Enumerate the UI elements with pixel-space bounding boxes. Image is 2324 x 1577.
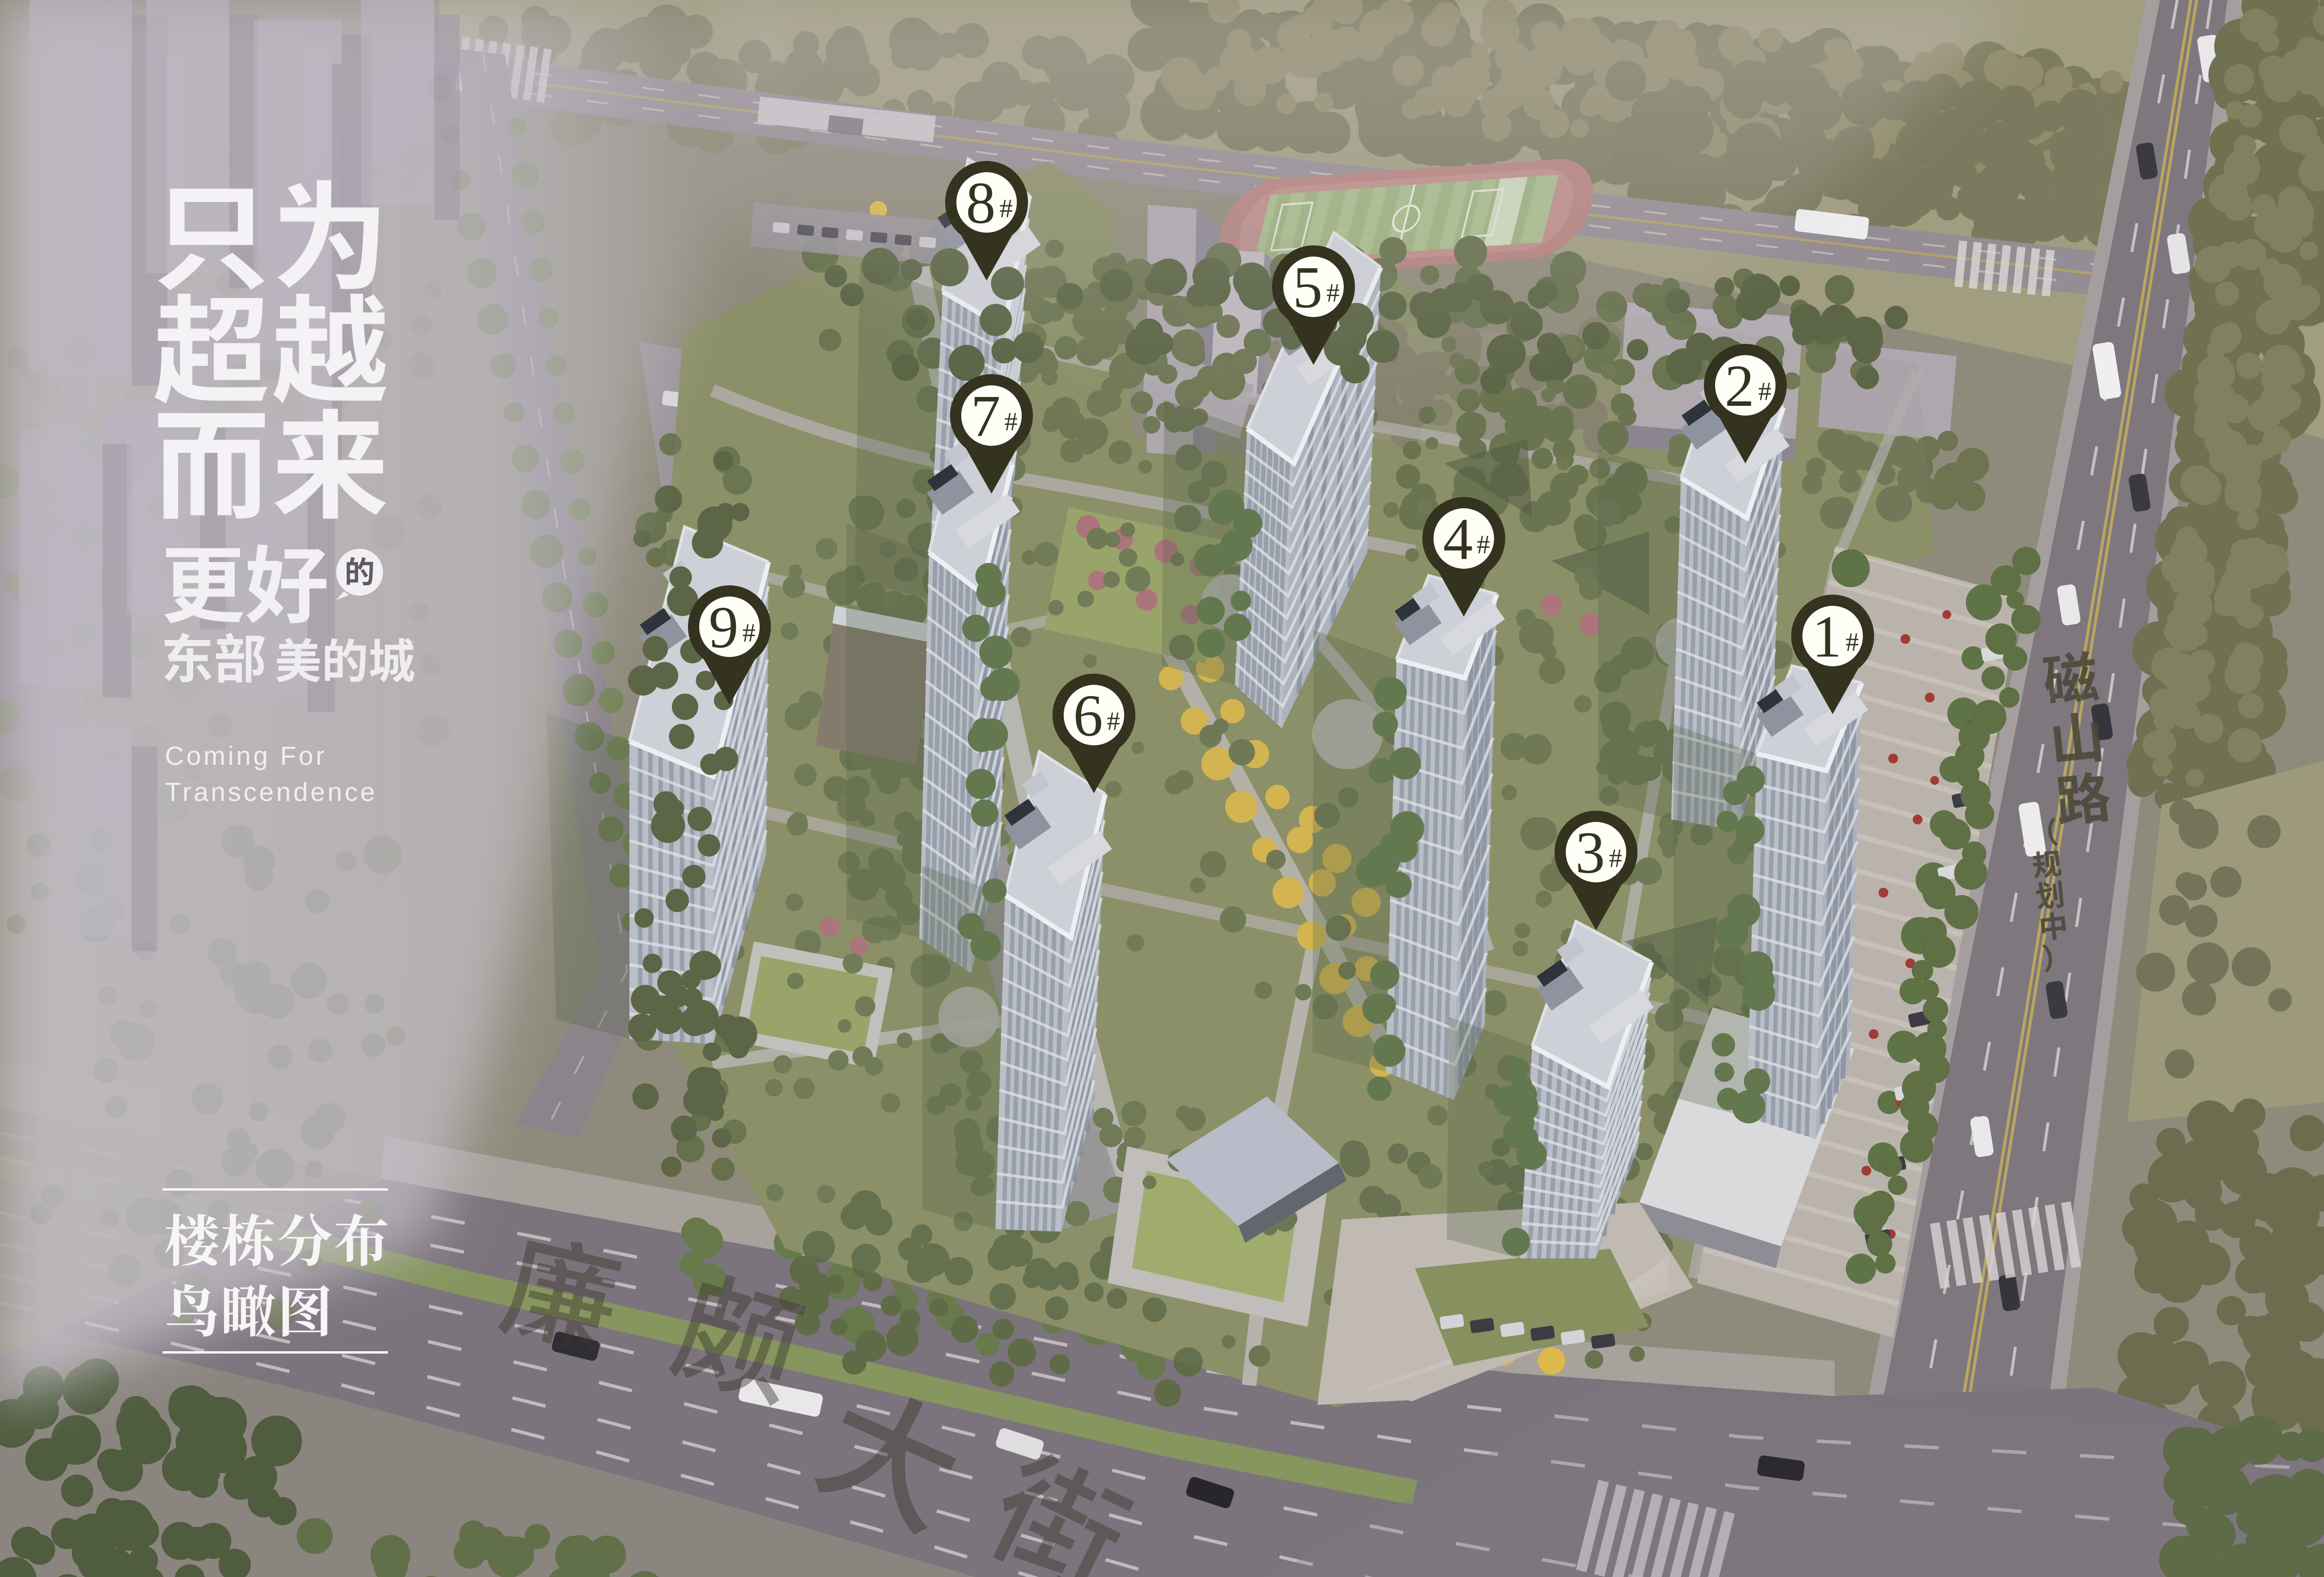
svg-text:#: #	[1327, 278, 1340, 307]
svg-text:Coming For: Coming For	[165, 741, 327, 771]
svg-text:8: 8	[966, 170, 996, 236]
svg-text:#: #	[1000, 194, 1013, 223]
svg-text:1: 1	[1812, 604, 1842, 670]
svg-text:5: 5	[1293, 255, 1323, 320]
svg-text:4: 4	[1443, 506, 1473, 572]
svg-text:#: #	[1846, 627, 1859, 657]
svg-text:#: #	[1477, 530, 1490, 559]
svg-text:3: 3	[1576, 820, 1605, 886]
svg-text:#: #	[1005, 407, 1018, 436]
svg-text:6: 6	[1073, 683, 1103, 749]
svg-text:#: #	[1107, 706, 1120, 736]
svg-text:#: #	[1758, 377, 1772, 406]
svg-text:#: #	[1609, 843, 1622, 873]
svg-text:Transcendence: Transcendence	[165, 778, 377, 807]
svg-text:9: 9	[709, 595, 739, 660]
svg-text:#: #	[743, 618, 756, 647]
svg-text:2: 2	[1725, 353, 1755, 419]
svg-text:7: 7	[971, 383, 1001, 449]
